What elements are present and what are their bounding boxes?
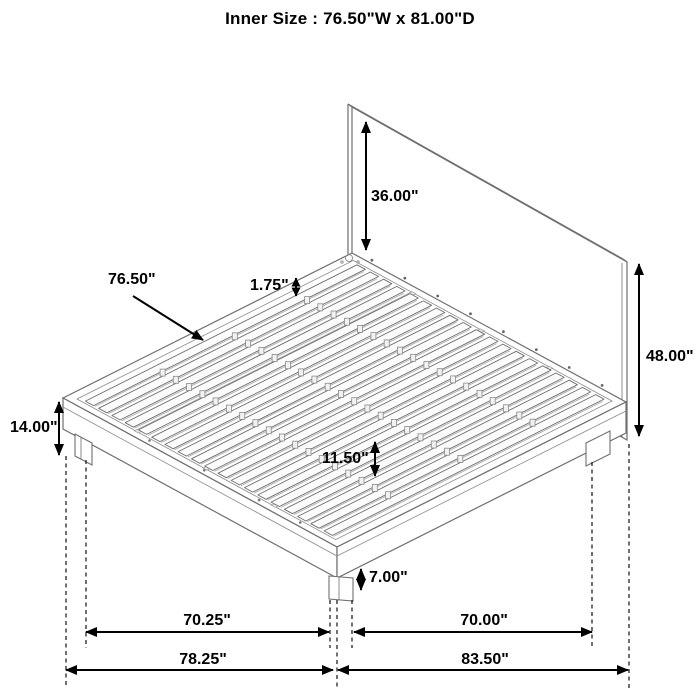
- platform-height-label: 14.00": [10, 419, 55, 437]
- bed-dimension-diagram: Inner Size : 76.50"W x 81.00"D 36.00" 48…: [0, 0, 700, 700]
- line-drawing: [0, 0, 700, 700]
- clearance-label: 11.50": [322, 450, 368, 468]
- headboard-total-height-label: 48.00": [646, 348, 694, 366]
- headboard-upper-height-label: 36.00": [371, 188, 419, 206]
- slat-thickness-label: 1.75": [250, 277, 289, 295]
- leg-height-label: 7.00": [369, 569, 408, 587]
- right-leg-span-label: 70.00": [460, 612, 508, 630]
- dim-leader-slat-width: [133, 296, 203, 340]
- left-leg-span-label: 70.25": [183, 612, 231, 630]
- inner-size-title: Inner Size : 76.50"W x 81.00"D: [0, 9, 700, 29]
- slat-width-label: 76.50": [108, 271, 156, 289]
- left-overall-span-label: 78.25": [179, 651, 227, 669]
- right-overall-span-label: 83.50": [461, 651, 509, 669]
- front-leg: [329, 576, 353, 601]
